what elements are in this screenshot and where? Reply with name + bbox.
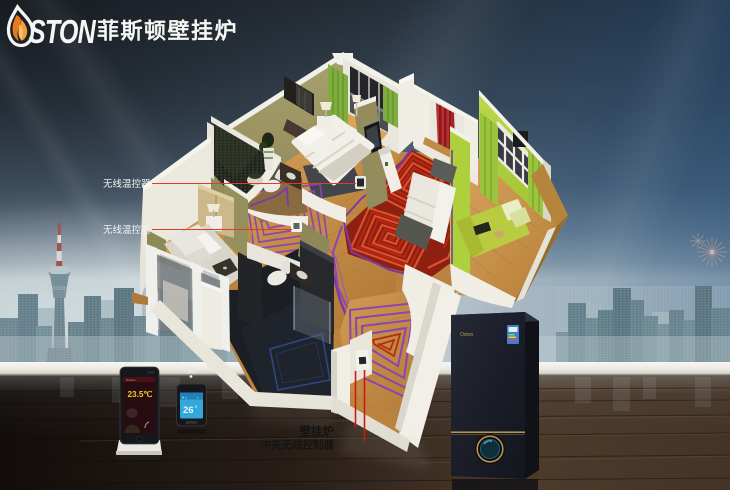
svg-text:OSTON: OSTON [186, 421, 197, 425]
svg-text:无线温控器: 无线温控器 [103, 224, 151, 236]
svg-text:壁挂炉: 壁挂炉 [300, 424, 335, 438]
svg-text:26: 26 [183, 405, 194, 416]
svg-text:Oston: Oston [460, 332, 474, 338]
svg-text:菲斯顿壁挂炉: 菲斯顿壁挂炉 [97, 19, 238, 44]
svg-text:23.5℃: 23.5℃ [128, 390, 153, 399]
svg-text:无线温控器: 无线温控器 [103, 178, 151, 190]
svg-text:STON: STON [29, 14, 97, 51]
svg-text:☼: ☼ [196, 396, 199, 400]
svg-text:Reborn: Reborn [126, 378, 136, 382]
svg-text:中央无线控制器: 中央无线控制器 [261, 438, 335, 451]
svg-text:♦ ⌂: ♦ ⌂ [182, 396, 187, 400]
